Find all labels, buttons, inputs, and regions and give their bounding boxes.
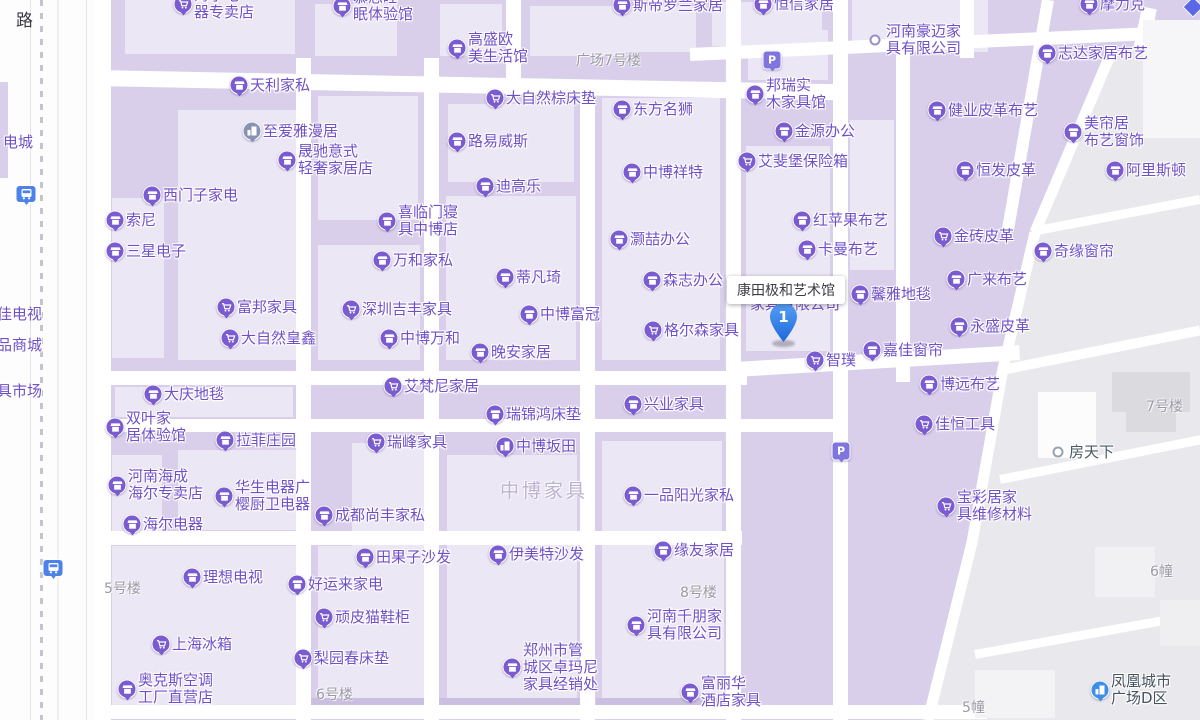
small-dot-icon[interactable]	[870, 35, 881, 46]
building-block	[178, 110, 296, 360]
poi-label[interactable]: 喜临门寝具中博店	[398, 204, 458, 238]
store-pin-icon[interactable]	[863, 341, 882, 360]
store-pin-icon[interactable]	[448, 39, 467, 58]
store-pin-icon[interactable]	[654, 541, 673, 560]
store-pin-icon[interactable]	[106, 418, 125, 437]
store-pin-icon[interactable]	[144, 385, 163, 404]
area-label: 广场7号楼	[576, 50, 641, 70]
poi-label[interactable]: 华生电器广樱厨卫电器	[235, 479, 310, 513]
poi-label[interactable]: 拉菲庄园	[236, 432, 296, 449]
cart-pin-icon[interactable]	[315, 608, 334, 627]
cart-pin-icon[interactable]	[217, 298, 236, 317]
poi-label[interactable]: 一品阳光家私	[644, 487, 734, 504]
poi-label[interactable]: 瑞锦鸿床垫	[506, 406, 581, 423]
poi-label[interactable]: 富邦家具	[237, 299, 297, 316]
poi-label[interactable]: 顽皮猫鞋柜	[335, 609, 410, 626]
build-pin-icon[interactable]	[1091, 681, 1110, 700]
cart-pin-icon[interactable]	[221, 329, 240, 348]
store-pin-icon[interactable]	[143, 186, 162, 205]
edge-poi-label[interactable]: 佳电视	[0, 306, 42, 323]
store-pin-icon[interactable]	[950, 317, 969, 336]
poi-label[interactable]: 阿里斯顿	[1126, 162, 1186, 179]
store-pin-icon[interactable]	[278, 151, 297, 170]
poi-label[interactable]: 大自然皇鑫	[241, 330, 316, 347]
poi-label[interactable]: 广来布艺	[967, 271, 1027, 288]
poi-label[interactable]: 邦瑞实木家具馆	[766, 77, 826, 111]
store-pin-icon[interactable]	[928, 101, 947, 120]
poi-label[interactable]: 梨园春床垫	[314, 650, 389, 667]
cart-pin-icon[interactable]	[644, 321, 663, 340]
poi-label[interactable]: 蒂凡琦	[516, 269, 561, 286]
store-pin-icon[interactable]	[476, 177, 495, 196]
poi-label[interactable]: 田果子沙发	[376, 549, 451, 566]
block-sliver	[0, 82, 8, 178]
poi-label[interactable]: 红苹果布艺	[813, 212, 888, 229]
gray-building	[1143, 20, 1200, 138]
edge-poi-label[interactable]: 电城	[3, 134, 33, 151]
store-pin-icon[interactable]	[746, 85, 765, 104]
store-pin-icon[interactable]	[1038, 44, 1057, 63]
poi-label[interactable]: 嘉佳窗帘	[883, 342, 943, 359]
poi-label[interactable]: 森志办公	[663, 272, 723, 289]
store-pin-icon[interactable]	[471, 343, 490, 362]
poi-label[interactable]: 艾梵尼家居	[404, 378, 479, 395]
poi-label[interactable]: 金砖皮革	[954, 228, 1014, 245]
poi-label[interactable]: 好运来家电	[308, 576, 383, 593]
cart-pin-icon[interactable]	[806, 351, 825, 370]
poi-label[interactable]: 郑州市管城区卓玛尼家具经销处	[523, 642, 598, 693]
poi-label[interactable]: 志达家居布艺	[1058, 45, 1148, 62]
gray-building	[1095, 547, 1155, 597]
poi-label[interactable]: 中博坂田	[516, 438, 576, 455]
store-pin-icon[interactable]	[380, 329, 399, 348]
apt-pin-icon[interactable]	[243, 122, 262, 141]
poi-label[interactable]: 索尼	[126, 212, 156, 229]
poi-label[interactable]: 瑞峰家具	[387, 434, 447, 451]
poi-label[interactable]: 河南豪迈家具有限公司	[886, 23, 961, 57]
poi-label[interactable]: 天利家私	[250, 77, 310, 94]
apt-pin-icon[interactable]	[496, 437, 515, 456]
selected-marker-number: 1	[778, 308, 788, 326]
store-pin-icon[interactable]	[520, 305, 539, 324]
road-segment	[580, 88, 595, 720]
poi-label[interactable]: 东方名狮	[633, 101, 693, 118]
cart-pin-icon[interactable]	[294, 649, 313, 668]
map-viewport[interactable]: 广场7号楼7号楼5号楼8号楼6号楼6幢5幢中博家具电城佳电视品商城具市场 海尔电…	[0, 0, 1200, 720]
store-pin-icon[interactable]	[1106, 161, 1125, 180]
area-label: 6幢	[1150, 561, 1173, 581]
poi-label[interactable]: 佳恒工具	[935, 416, 995, 433]
store-pin-icon[interactable]	[503, 658, 522, 677]
area-label: 6号楼	[316, 684, 353, 704]
poi-label[interactable]: 卡曼布艺	[818, 241, 878, 258]
poi-label[interactable]: 晚安家居	[491, 344, 551, 361]
poi-label[interactable]: 双叶家居体验馆	[126, 410, 186, 444]
area-label: 5幢	[962, 697, 985, 717]
store-pin-icon[interactable]	[288, 575, 307, 594]
parking-icon[interactable]: P	[832, 442, 851, 461]
poi-label[interactable]: 灏喆办公	[630, 231, 690, 248]
poi-label[interactable]: 中博祥特	[643, 164, 703, 181]
road-segment	[726, 0, 741, 720]
small-dot-icon[interactable]	[1053, 447, 1064, 458]
store-pin-icon[interactable]	[613, 100, 632, 119]
lane-line	[57, 0, 59, 720]
poi-label[interactable]: 理想电视	[203, 569, 263, 586]
parking-icon[interactable]: P	[763, 51, 782, 70]
store-pin-icon[interactable]	[496, 268, 515, 287]
store-pin-icon[interactable]	[610, 230, 629, 249]
poi-label[interactable]: 上海冰箱	[172, 636, 232, 653]
area-label: 8号楼	[680, 582, 717, 602]
poi-label[interactable]: 西门子家电	[163, 187, 238, 204]
cart-pin-icon[interactable]	[384, 377, 403, 396]
cart-pin-icon[interactable]	[152, 635, 171, 654]
store-pin-icon[interactable]	[851, 285, 870, 304]
poi-label[interactable]: 健业皮革布艺	[948, 102, 1038, 119]
store-pin-icon[interactable]	[681, 683, 700, 702]
road-segment	[95, 0, 111, 720]
cart-pin-icon[interactable]	[367, 433, 386, 452]
store-pin-icon[interactable]	[643, 271, 662, 290]
store-pin-icon[interactable]	[793, 211, 812, 230]
area-label: 7号楼	[1146, 396, 1183, 416]
left-road-zone	[0, 0, 95, 720]
poi-label[interactable]: 河南千朋家具有限公司	[647, 608, 722, 642]
transit-diamond-icon[interactable]	[1182, 0, 1200, 18]
cart-pin-icon[interactable]	[915, 415, 934, 434]
store-pin-icon[interactable]	[486, 405, 505, 424]
poi-label[interactable]: 摩力克	[1100, 0, 1145, 13]
poi-label[interactable]: 中博万和	[400, 330, 460, 347]
store-pin-icon[interactable]	[624, 395, 643, 414]
cart-pin-icon[interactable]	[486, 89, 505, 108]
poi-label[interactable]: 博远布艺	[940, 376, 1000, 393]
poi-label[interactable]: 格尔森家具	[664, 322, 739, 339]
curb-line	[86, 0, 87, 720]
store-pin-icon[interactable]	[798, 240, 817, 259]
area-label: 中博家具	[500, 476, 588, 503]
store-pin-icon[interactable]	[356, 548, 375, 567]
store-pin-icon[interactable]	[489, 545, 508, 564]
store-pin-icon[interactable]	[956, 161, 975, 180]
selected-marker-1[interactable]: 1	[768, 302, 799, 348]
selected-poi-tooltip[interactable]: 康田极和艺术馆	[727, 276, 845, 304]
road-segment	[95, 705, 987, 719]
poi-label[interactable]: 深圳吉丰家具	[362, 301, 452, 318]
store-pin-icon[interactable]	[118, 680, 137, 699]
store-pin-icon[interactable]	[627, 616, 646, 635]
store-pin-icon[interactable]	[775, 122, 794, 141]
poi-label[interactable]: 慕思睡眠体验馆	[353, 0, 413, 23]
store-pin-icon[interactable]	[920, 375, 939, 394]
road-segment	[960, 0, 974, 58]
poi-label[interactable]: 成都尚丰家私	[335, 507, 425, 524]
poi-label[interactable]: 海尔电器	[143, 516, 203, 533]
store-pin-icon[interactable]	[624, 486, 643, 505]
store-pin-icon[interactable]	[373, 251, 392, 270]
poi-label[interactable]: 房天下	[1069, 444, 1114, 461]
poi-label[interactable]: 奇缘窗帘	[1054, 243, 1114, 260]
store-pin-icon[interactable]	[623, 163, 642, 182]
store-pin-icon[interactable]	[123, 515, 142, 534]
cart-pin-icon[interactable]	[934, 227, 953, 246]
poi-label[interactable]: 高盛欧美生活馆	[468, 31, 528, 65]
store-pin-icon[interactable]	[448, 132, 467, 151]
poi-label[interactable]: 中博富冠	[540, 306, 600, 323]
area-label: 5号楼	[104, 578, 141, 598]
road-segment	[95, 419, 847, 432]
poi-label[interactable]: 海尔电器专卖店	[194, 0, 254, 21]
poi-label[interactable]: 河南海成海尔专卖店	[128, 468, 203, 502]
poi-label[interactable]: 万和家私	[393, 252, 453, 269]
poi-label[interactable]: 伊美特沙发	[509, 546, 584, 563]
cart-pin-icon[interactable]	[937, 497, 956, 516]
poi-label[interactable]: 凤凰城市广场D区	[1111, 673, 1171, 707]
store-pin-icon[interactable]	[947, 270, 966, 289]
store-pin-icon[interactable]	[183, 568, 202, 587]
poi-label[interactable]: 斯帝罗兰家居	[633, 0, 723, 14]
poi-label[interactable]: 美帘居布艺窗饰	[1084, 115, 1144, 149]
poi-label[interactable]: 富丽华酒店家具	[701, 675, 761, 709]
road-segment	[95, 531, 742, 545]
road-name-label: 路	[16, 6, 33, 31]
poi-label[interactable]: 馨雅地毯	[871, 286, 931, 303]
store-pin-icon[interactable]	[378, 212, 397, 231]
road-segment	[896, 52, 910, 382]
poi-label[interactable]: 恒信家居	[774, 0, 834, 13]
poi-label[interactable]: 恒发皮革	[976, 162, 1036, 179]
store-pin-icon[interactable]	[106, 211, 125, 230]
store-pin-icon[interactable]	[215, 487, 234, 506]
store-pin-icon[interactable]	[1034, 242, 1053, 261]
cart-pin-icon[interactable]	[342, 300, 361, 319]
poi-label[interactable]: 兴业家具	[644, 396, 704, 413]
store-pin-icon[interactable]	[108, 476, 127, 495]
store-pin-icon[interactable]	[106, 242, 125, 261]
store-pin-icon[interactable]	[1064, 123, 1083, 142]
store-pin-icon[interactable]	[216, 431, 235, 450]
poi-label[interactable]: 迪高乐	[496, 178, 541, 195]
poi-label[interactable]: 至爱雅漫居	[263, 123, 338, 140]
cart-pin-icon[interactable]	[738, 152, 757, 171]
store-pin-icon[interactable]	[315, 506, 334, 525]
poi-label[interactable]: 缘友家居	[674, 542, 734, 559]
poi-label[interactable]: 路易威斯	[468, 133, 528, 150]
poi-label[interactable]: 奥克斯空调工厂直营店	[138, 672, 213, 706]
store-pin-icon[interactable]	[230, 76, 249, 95]
edge-poi-label[interactable]: 具市场	[0, 383, 42, 400]
gray-building	[1160, 600, 1200, 646]
gray-building	[975, 670, 1055, 718]
bus-stop-icon[interactable]	[43, 559, 64, 577]
poi-label[interactable]: 大庆地毯	[164, 386, 224, 403]
curb-line	[30, 0, 31, 720]
poi-label[interactable]: 金源办公	[795, 123, 855, 140]
poi-label[interactable]: 智璞	[826, 352, 856, 369]
poi-label[interactable]: 晟驰意式轻奢家居店	[298, 143, 373, 177]
poi-label[interactable]: 永盛皮革	[970, 318, 1030, 335]
poi-label[interactable]: 三星电子	[126, 243, 186, 260]
edge-poi-label[interactable]: 品商城	[0, 337, 42, 354]
poi-label[interactable]: 艾斐堡保险箱	[758, 153, 848, 170]
poi-label[interactable]: 宝彩居家具维修材料	[957, 489, 1032, 523]
bus-stop-icon[interactable]	[16, 185, 37, 203]
poi-label[interactable]: 大自然棕床垫	[506, 90, 596, 107]
railway-dashed-line	[40, 0, 43, 720]
store-pin-icon[interactable]	[1080, 0, 1099, 14]
